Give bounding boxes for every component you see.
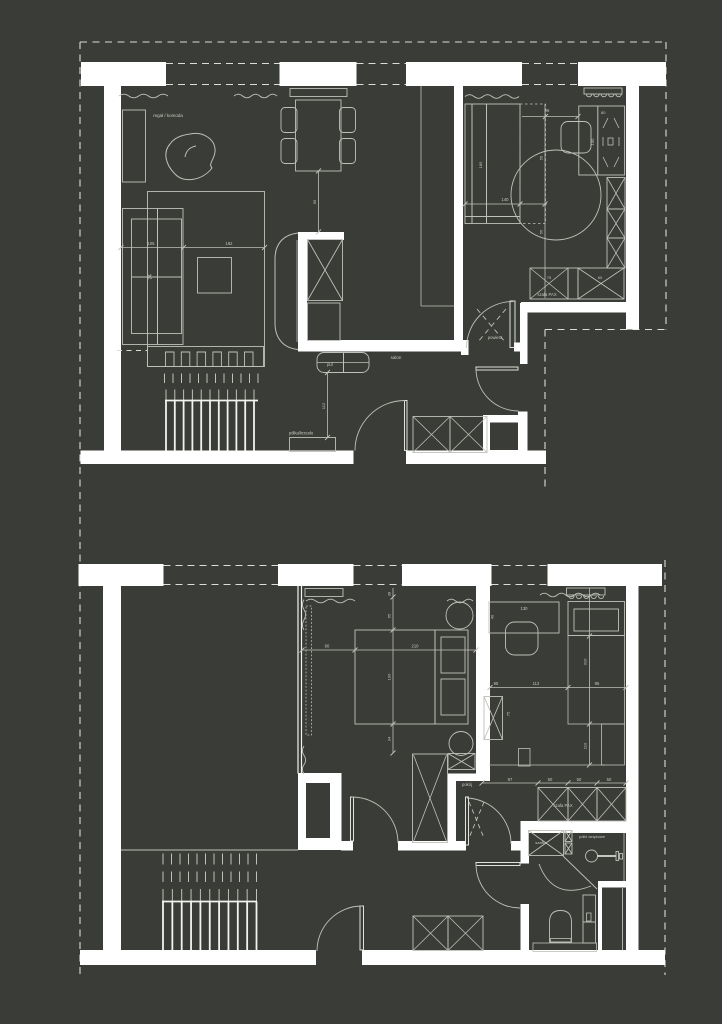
svg-text:75: 75 [506, 711, 511, 716]
svg-text:95: 95 [595, 681, 600, 686]
svg-text:50: 50 [607, 777, 612, 782]
svg-text:szafa PAX: szafa PAX [553, 803, 572, 808]
svg-text:38: 38 [387, 591, 392, 596]
svg-text:60: 60 [598, 275, 603, 280]
svg-text:95: 95 [312, 199, 317, 204]
svg-text:75: 75 [547, 275, 552, 280]
svg-text:56: 56 [539, 229, 544, 234]
svg-text:130: 130 [521, 606, 529, 611]
svg-text:97: 97 [508, 777, 513, 782]
svg-text:56: 56 [539, 155, 544, 160]
svg-text:110: 110 [583, 742, 588, 749]
svg-text:185: 185 [478, 161, 483, 168]
svg-text:puf: puf [327, 362, 334, 367]
svg-text:90: 90 [325, 644, 330, 649]
svg-text:50: 50 [577, 777, 582, 782]
svg-text:140: 140 [502, 197, 510, 202]
svg-text:40: 40 [490, 614, 495, 619]
svg-text:regał / komoda: regał / komoda [153, 113, 183, 118]
svg-text:półka/krzesło: półka/krzesło [289, 431, 314, 436]
svg-text:powierz: powierz [488, 335, 502, 340]
svg-text:80: 80 [601, 110, 606, 115]
svg-text:112: 112 [533, 681, 540, 686]
svg-text:65: 65 [387, 613, 392, 618]
svg-text:210: 210 [412, 644, 420, 649]
svg-text:szafka: szafka [535, 840, 547, 845]
svg-text:112: 112 [321, 402, 326, 409]
svg-text:szafa PAX: szafa PAX [537, 292, 556, 297]
svg-text:34: 34 [387, 736, 392, 741]
svg-text:pokój: pokój [462, 782, 472, 787]
svg-text:50: 50 [548, 777, 553, 782]
svg-text:74: 74 [148, 274, 154, 280]
svg-text:190: 190 [387, 673, 392, 680]
svg-text:półki wnękowe: półki wnękowe [579, 834, 606, 839]
svg-text:95: 95 [494, 681, 499, 686]
svg-text:310: 310 [583, 658, 588, 665]
svg-text:96: 96 [545, 108, 550, 113]
svg-text:162: 162 [226, 241, 234, 246]
svg-text:105: 105 [148, 241, 156, 246]
svg-text:salon: salon [391, 355, 402, 360]
